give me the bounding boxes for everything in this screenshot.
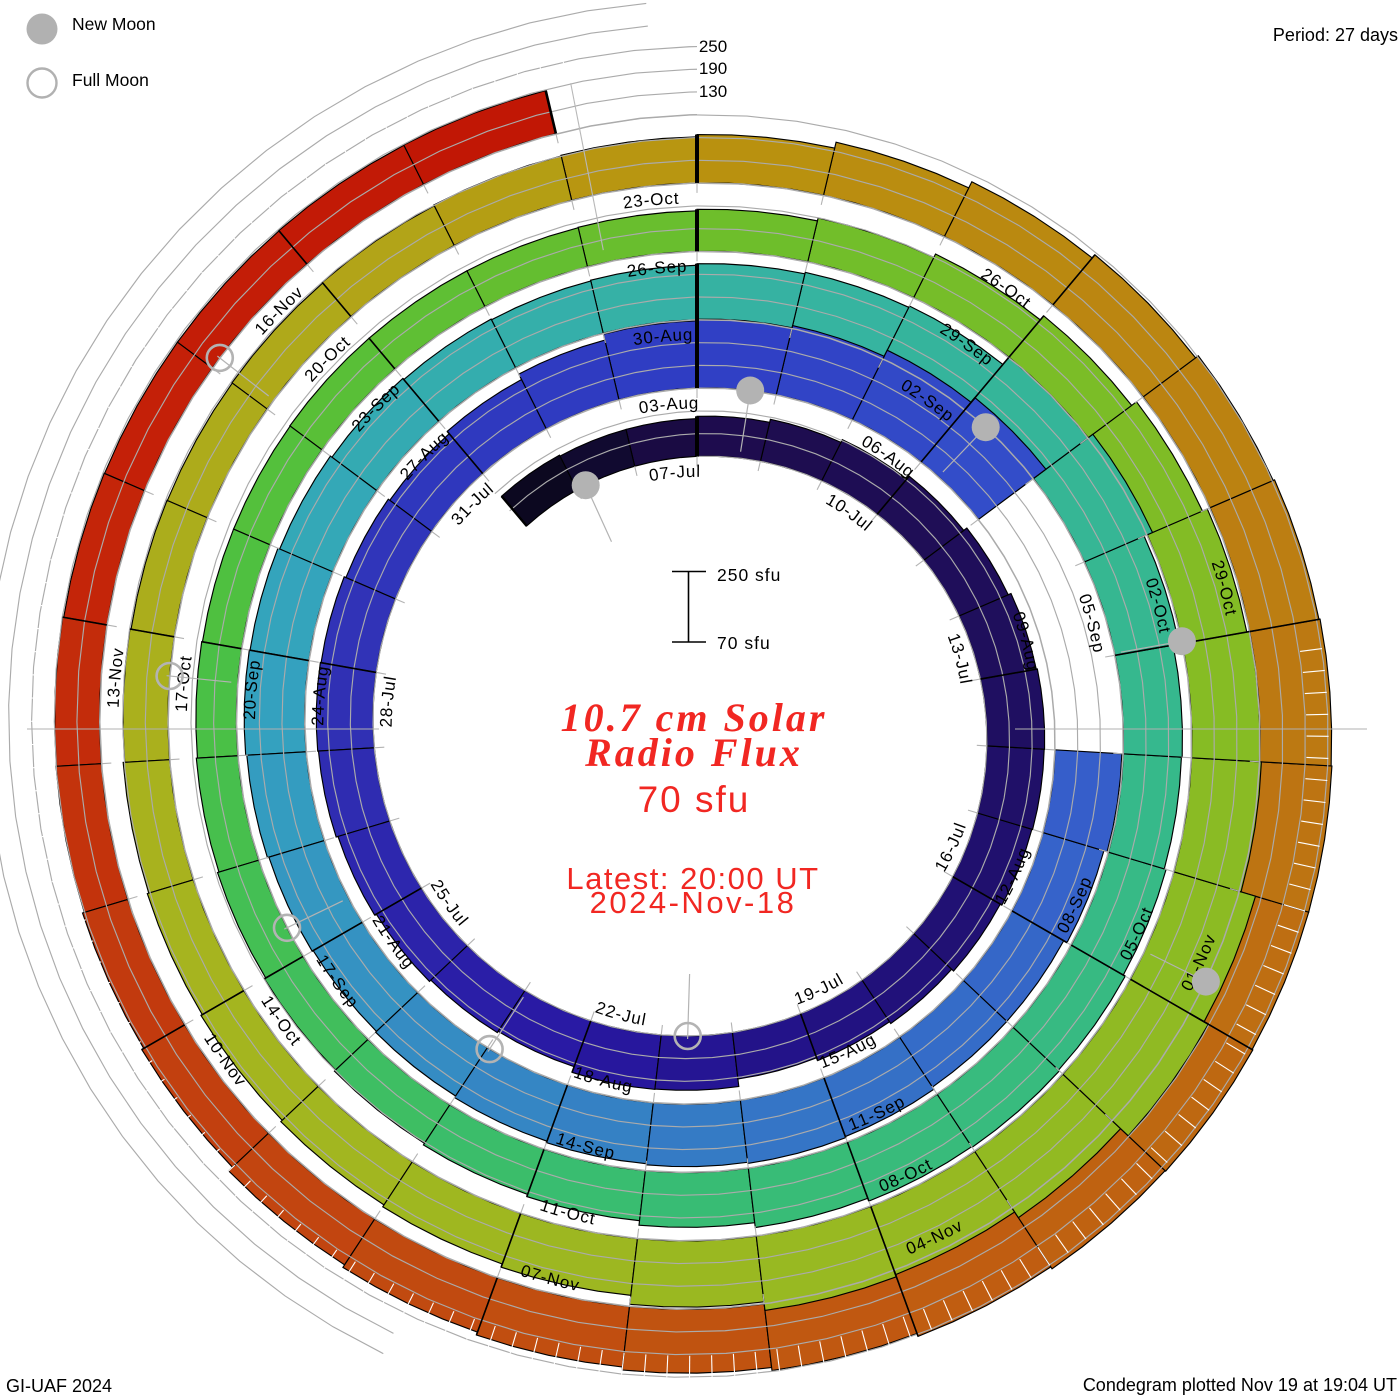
svg-text:Full Moon: Full Moon — [72, 70, 149, 90]
svg-text:250: 250 — [699, 37, 727, 56]
svg-text:c: c — [664, 189, 674, 208]
svg-text:1: 1 — [172, 702, 191, 712]
svg-text:O: O — [649, 190, 664, 210]
svg-text:Period: 27 days: Period: 27 days — [1273, 25, 1398, 45]
svg-text:u: u — [686, 462, 696, 481]
svg-text:4: 4 — [309, 705, 328, 715]
svg-text:g: g — [683, 325, 693, 344]
svg-text:S: S — [654, 258, 667, 278]
svg-text:N: N — [105, 667, 125, 681]
svg-text:8: 8 — [377, 707, 396, 717]
svg-text:250 sfu: 250 sfu — [717, 565, 781, 585]
svg-text:2024-Nov-18: 2024-Nov-18 — [590, 885, 797, 920]
svg-text:70 sfu: 70 sfu — [717, 633, 771, 653]
svg-text:g: g — [689, 394, 699, 413]
svg-text:2: 2 — [377, 718, 396, 728]
svg-text:2: 2 — [308, 716, 327, 726]
svg-text:70 sfu: 70 sfu — [638, 779, 751, 820]
svg-text:GI-UAF 2024: GI-UAF 2024 — [6, 1376, 112, 1396]
svg-text:A: A — [666, 394, 679, 414]
svg-text:e: e — [666, 257, 677, 276]
svg-text:J: J — [676, 462, 686, 481]
svg-text:New Moon: New Moon — [72, 14, 156, 34]
svg-text:0: 0 — [240, 699, 259, 709]
svg-text:2: 2 — [240, 710, 259, 720]
svg-text:S: S — [242, 680, 262, 693]
svg-text:7: 7 — [172, 691, 192, 702]
svg-text:190: 190 — [699, 59, 727, 78]
svg-text:Radio Flux: Radio Flux — [584, 730, 803, 775]
svg-text:Condegram plotted Nov 19 at 19: Condegram plotted Nov 19 at 19:04 UT — [1083, 1375, 1397, 1395]
svg-text:p: p — [677, 257, 687, 276]
svg-text:3: 3 — [104, 687, 124, 698]
svg-text:1: 1 — [104, 698, 123, 708]
svg-text:u: u — [678, 394, 688, 413]
svg-text:A: A — [660, 326, 673, 346]
svg-text:u: u — [672, 325, 682, 344]
svg-text:l: l — [696, 462, 700, 481]
svg-text:130: 130 — [699, 82, 727, 101]
